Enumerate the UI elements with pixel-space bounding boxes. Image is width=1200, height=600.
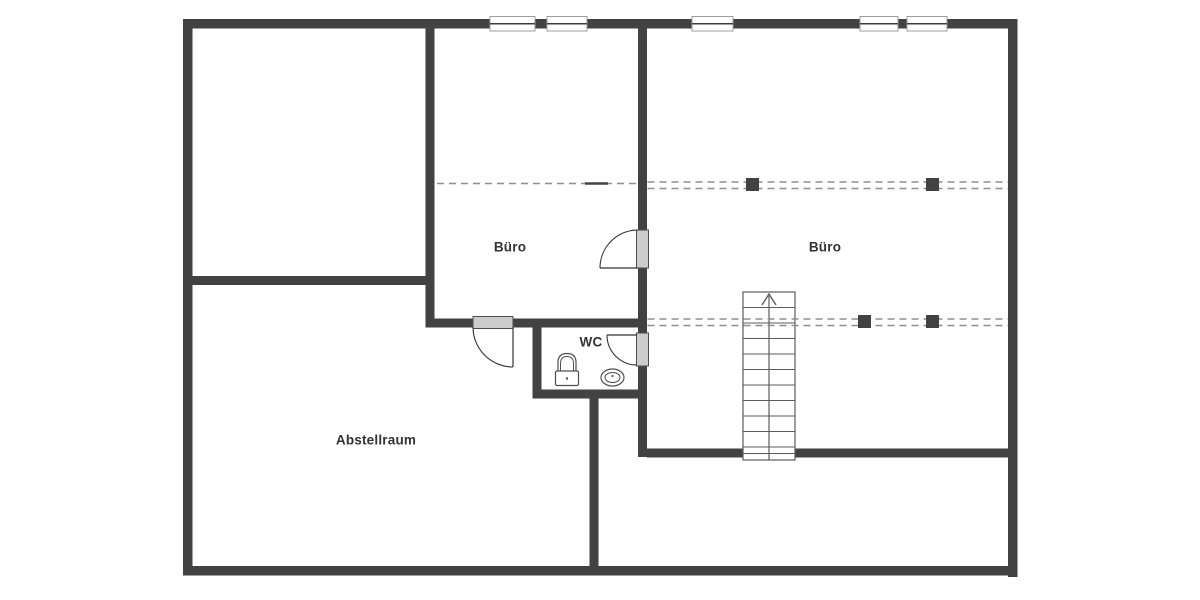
wall-buero1-bottom-right	[513, 319, 638, 328]
room-label-buero-2: Büro	[809, 240, 841, 255]
wall-center-vertical-a	[638, 28, 647, 230]
room-label-wc: WC	[580, 335, 603, 350]
wall-topleft-room-bottom	[192, 276, 434, 285]
door-buero1-buero2-leaf	[637, 230, 649, 268]
door-wc-swing-arc	[607, 335, 637, 365]
outer-wall-right	[1008, 19, 1018, 577]
post-3	[858, 315, 871, 328]
room-label-abstellraum: Abstellraum	[336, 433, 416, 448]
toilet-flush-button	[566, 377, 568, 379]
door-wc-leaf	[637, 333, 649, 366]
wall-center-vertical-b	[638, 268, 647, 333]
wall-buero2-bottom-right	[795, 449, 1008, 458]
wall-buero2-bottom-left	[647, 449, 743, 458]
wall-center-vertical-c	[638, 365, 647, 457]
room-label-buero-1: Büro	[494, 240, 526, 255]
wall-wc-left	[533, 327, 542, 398]
door-buero1-buero2-swing-arc	[600, 230, 638, 268]
door-buero1-abstellraum-swing-arc	[473, 327, 513, 367]
wall-wc-bottom	[533, 390, 648, 399]
door-buero1-abstellraum-leaf	[473, 317, 513, 329]
wall-abstellraum-right	[590, 398, 599, 566]
sink-drain-dot	[611, 375, 613, 377]
outer-wall-bottom	[183, 566, 1018, 576]
floor-plan-screenshot: Büro Büro WC Abstellraum	[0, 0, 1200, 600]
post-4	[926, 315, 939, 328]
outer-wall-left	[183, 19, 193, 576]
post-1	[746, 178, 759, 191]
sink-icon	[601, 369, 624, 386]
wall-buero1-bottom-left	[426, 319, 474, 328]
floor-plan-canvas	[0, 0, 1200, 600]
post-2	[926, 178, 939, 191]
